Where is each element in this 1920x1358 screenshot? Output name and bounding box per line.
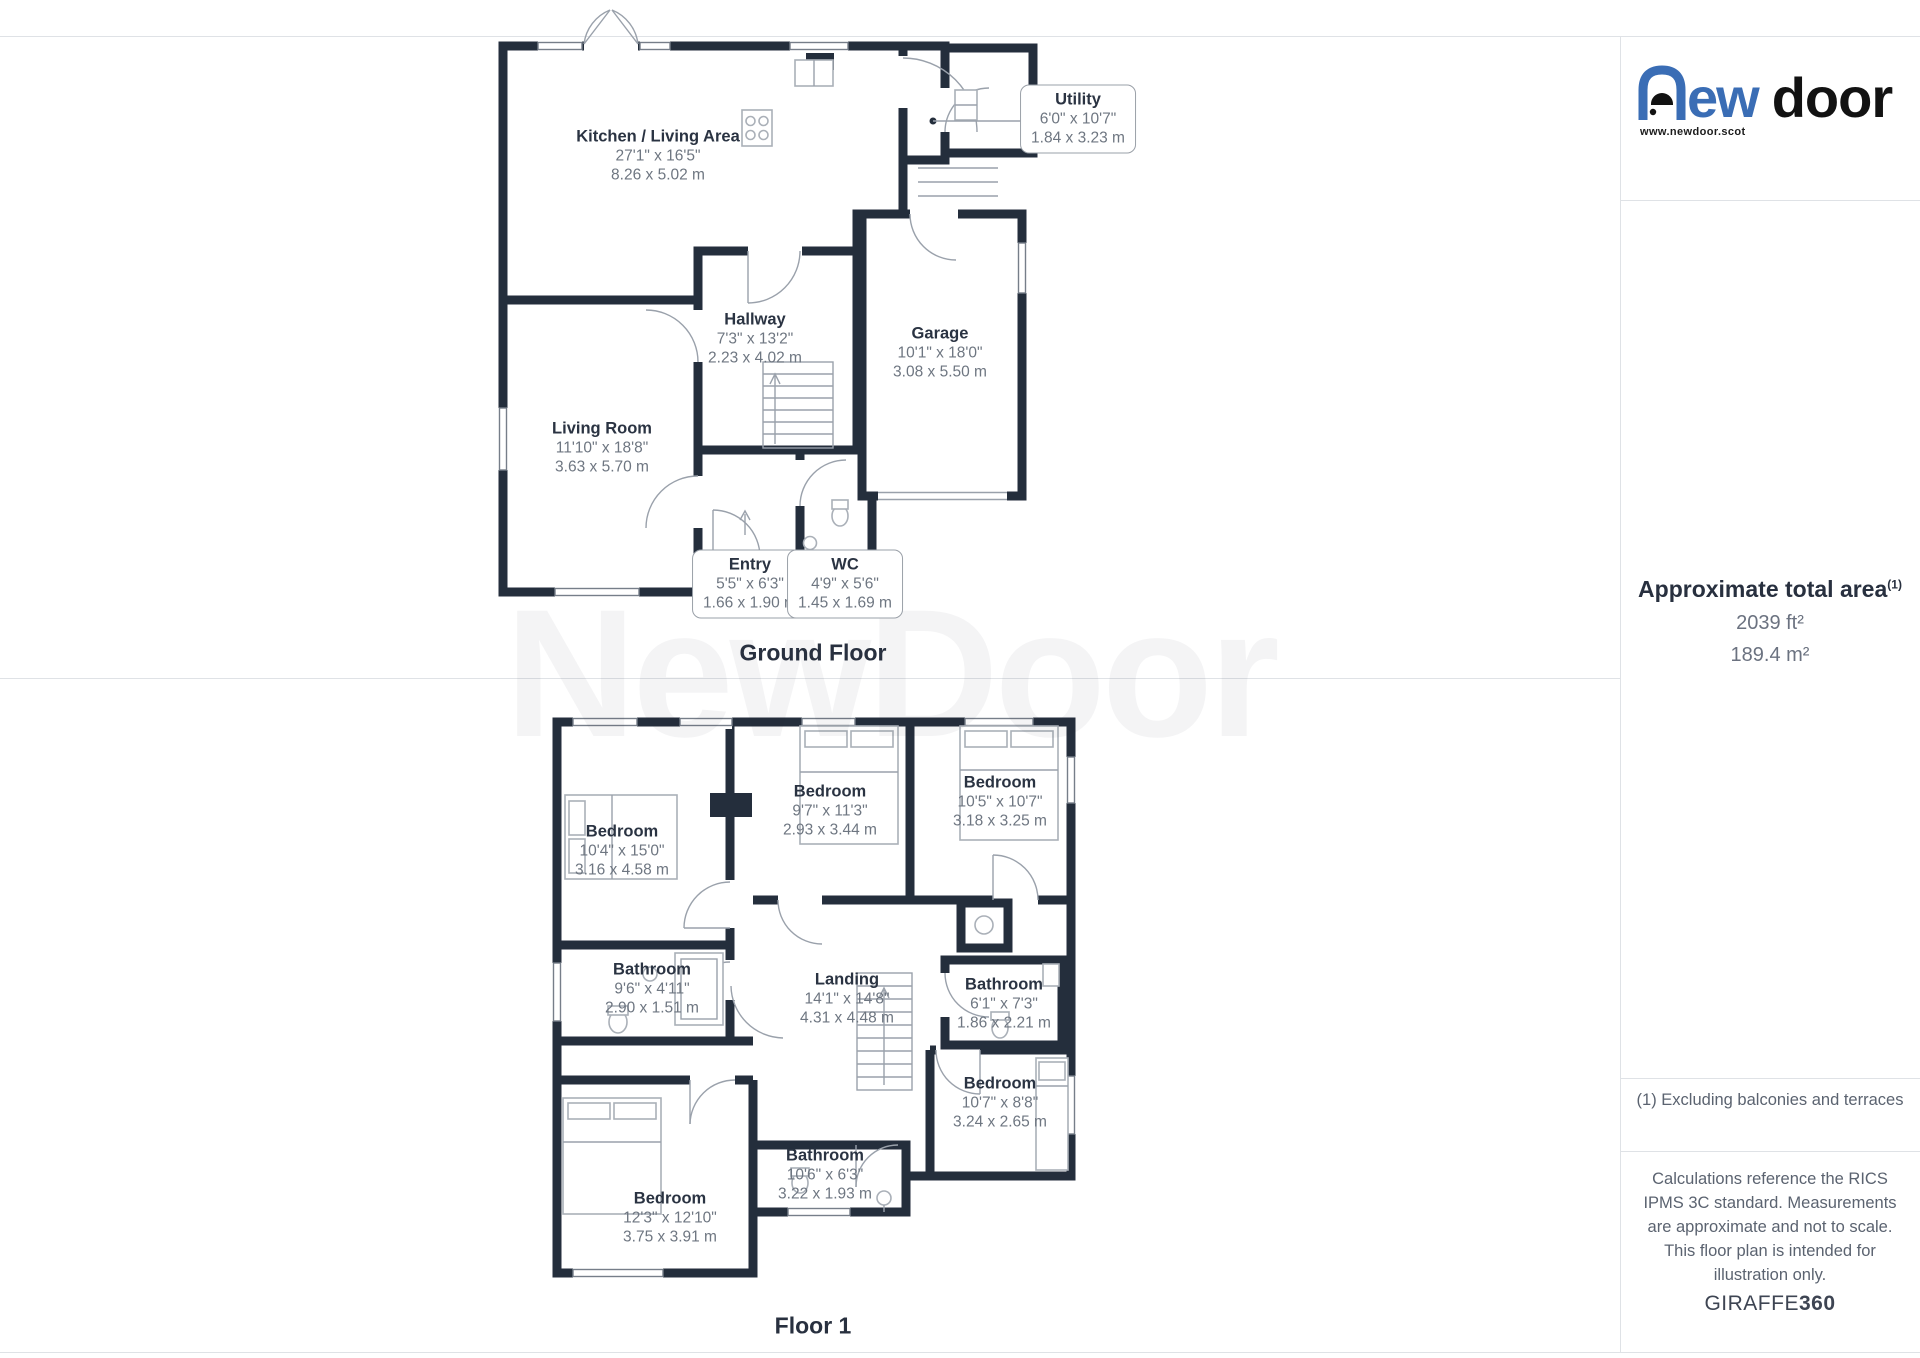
logo-text-new: ew	[1687, 74, 1758, 122]
disclaimer-text: Calculations reference the RICS IPMS 3C …	[1639, 1168, 1901, 1288]
sidebar: ew door www.newdoor.scot Approximate tot…	[1620, 36, 1920, 1352]
total-area-imperial: 2039 ft²	[1620, 612, 1920, 635]
footnote-text: (1) Excluding balconies and terraces	[1630, 1091, 1910, 1110]
total-area-block: Approximate total area(1) 2039 ft² 189.4…	[1620, 576, 1920, 667]
utility-label: Utility6'0" x 10'7"1.84 x 3.23 m	[1020, 85, 1136, 154]
ground-floor-title: Ground Floor	[740, 640, 887, 667]
sidebar-logo-divider	[1620, 200, 1920, 201]
floor-1-title: Floor 1	[775, 1313, 852, 1340]
sidebar-footnote-divider-bottom	[1620, 1151, 1920, 1152]
hallway-label: Hallway7'3" x 13'2"2.23 x 4.02 m	[708, 311, 802, 368]
bathroom-label: Bathroom10'6" x 6'3"3.22 x 1.93 m	[778, 1147, 872, 1204]
bathroom-label: Bathroom9'6" x 4'11"2.90 x 1.51 m	[605, 961, 699, 1018]
footnote-marker: (1)	[1887, 577, 1902, 591]
bedroom-label: Bedroom10'5" x 10'7"3.18 x 3.25 m	[953, 774, 1047, 831]
garage-label: Garage10'1" x 18'0"3.08 x 5.50 m	[893, 325, 987, 382]
bedroom-label: Bedroom12'3" x 12'10"3.75 x 3.91 m	[623, 1190, 717, 1247]
giraffe360-credit: GIRAFFE360	[1620, 1292, 1920, 1316]
bathroom-label: Bathroom6'1" x 7'3"1.86 x 2.21 m	[957, 976, 1051, 1033]
total-area-metric: 189.4 m²	[1620, 644, 1920, 667]
bedroom-label: Bedroom9'7" x 11'3"2.93 x 3.44 m	[783, 783, 877, 840]
bedroom-label: Bedroom10'7" x 8'8"3.24 x 2.65 m	[953, 1075, 1047, 1132]
living-room-label: Living Room11'10" x 18'8"3.63 x 5.70 m	[552, 420, 652, 477]
total-area-title: Approximate total area(1)	[1620, 576, 1920, 603]
door-arch-icon	[1638, 64, 1686, 122]
floorplan-page: NewDoor Kitchen / Living Area27'1" x 16'…	[0, 0, 1920, 1358]
bedroom-label: Bedroom10'4" x 15'0"3.16 x 4.58 m	[575, 823, 669, 880]
wc-label: WC4'9" x 5'6"1.45 x 1.69 m	[787, 550, 903, 619]
brand-logo: ew door www.newdoor.scot	[1638, 64, 1902, 138]
landing-label: Landing14'1" x 14'8"4.31 x 4.48 m	[800, 971, 894, 1028]
sidebar-footnote-divider-top	[1620, 1078, 1920, 1079]
kitchen-living-area-label: Kitchen / Living Area27'1" x 16'5"8.26 x…	[576, 128, 740, 185]
logo-text-door: door	[1772, 74, 1892, 122]
